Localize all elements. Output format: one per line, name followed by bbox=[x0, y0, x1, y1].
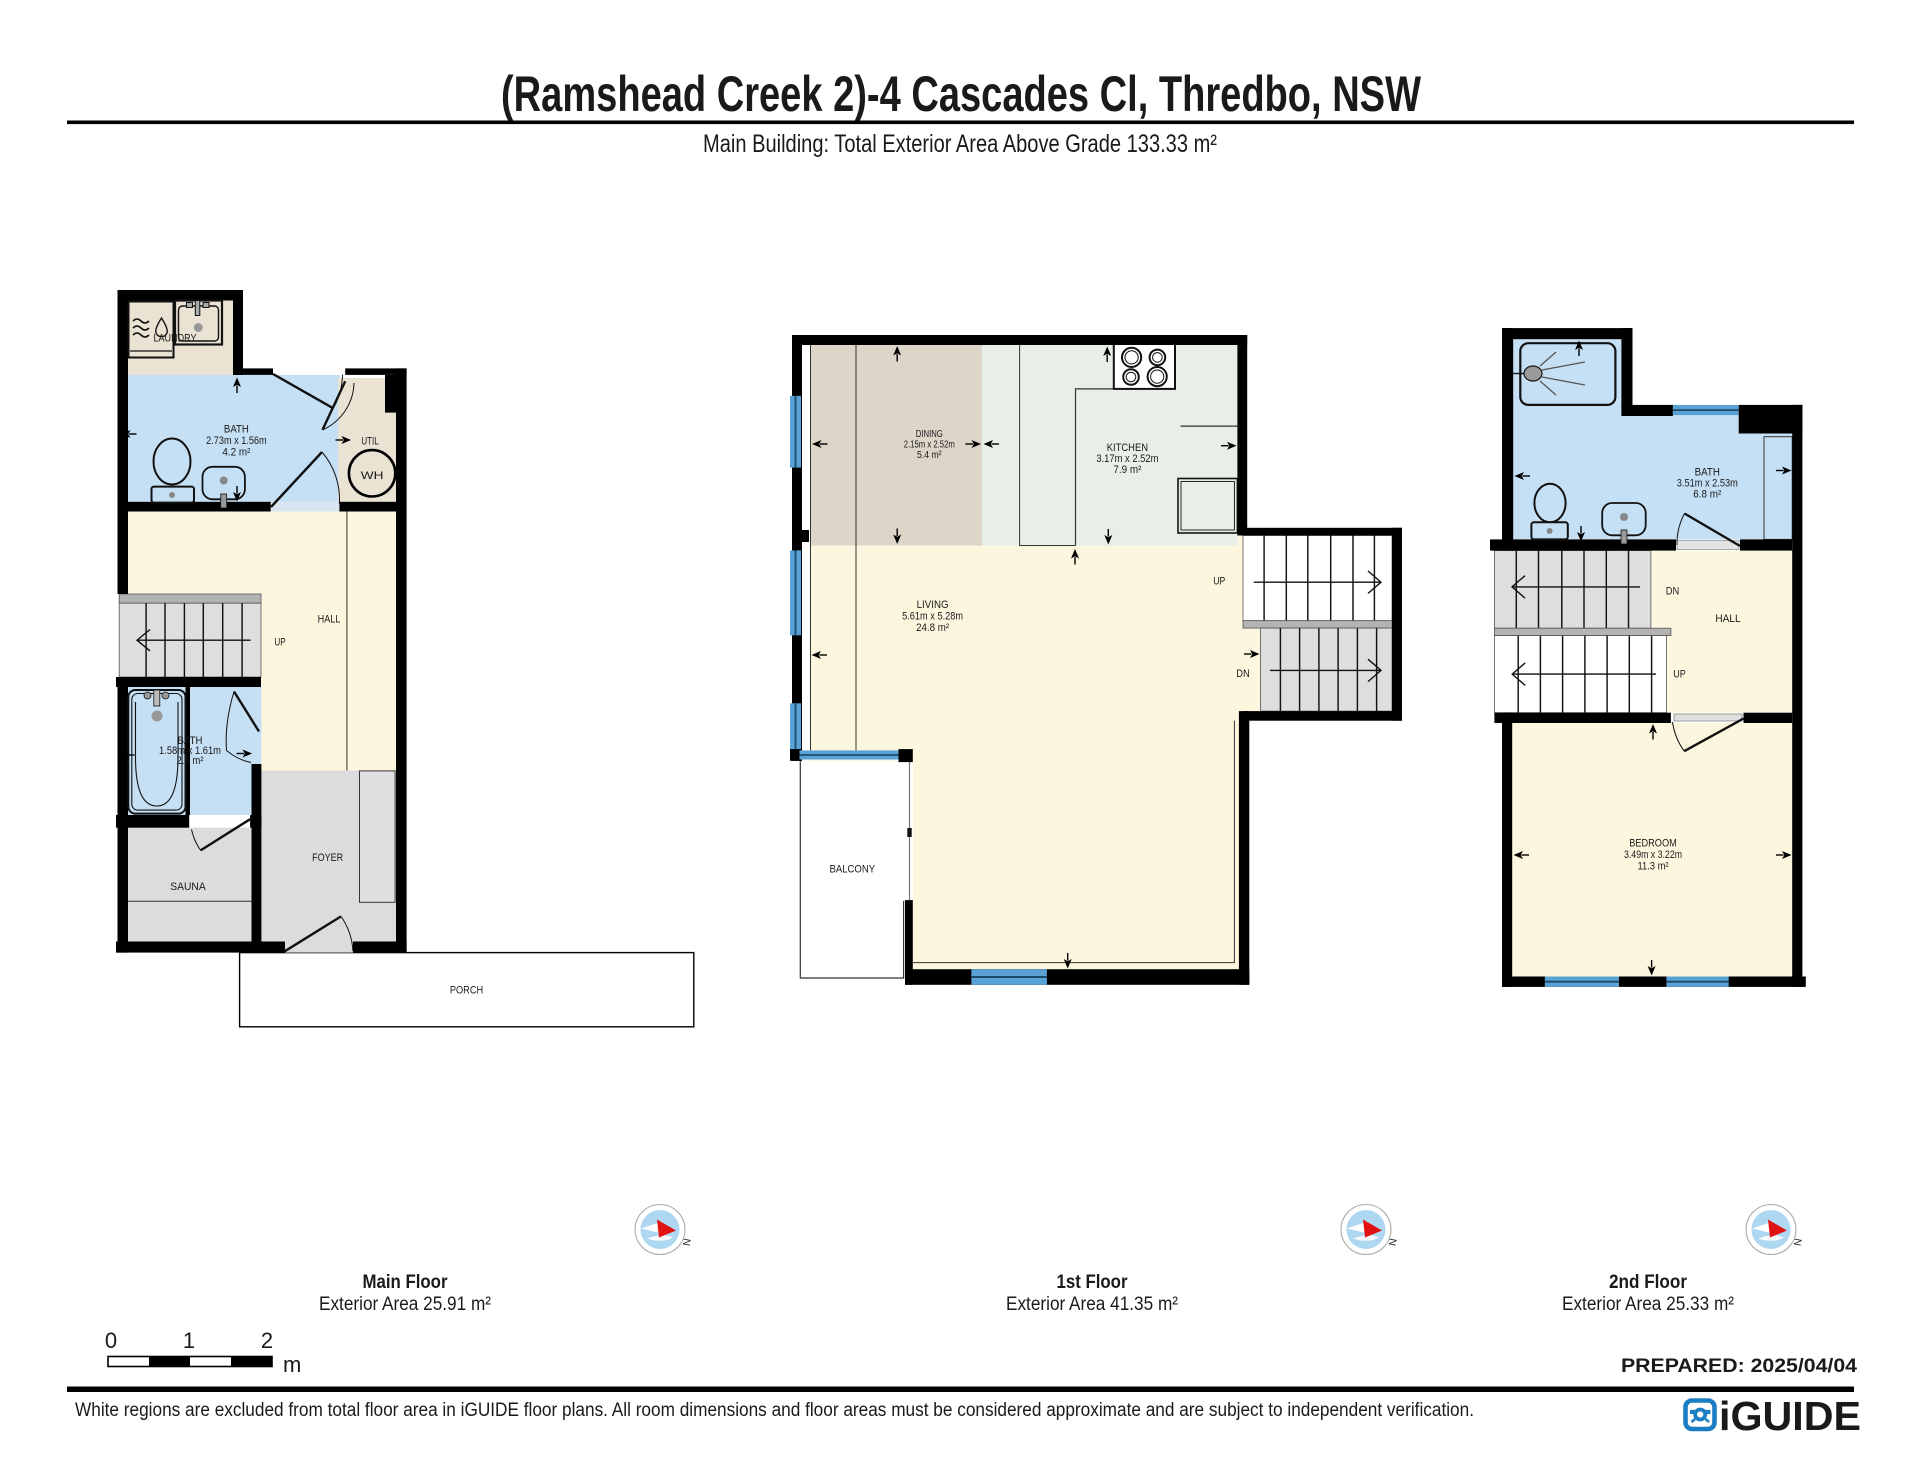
svg-text:DINING: DINING bbox=[916, 429, 943, 440]
svg-text:0: 0 bbox=[105, 1328, 117, 1353]
svg-text:KITCHEN: KITCHEN bbox=[1107, 442, 1148, 454]
svg-text:2nd Floor: 2nd Floor bbox=[1609, 1272, 1688, 1293]
svg-text:1: 1 bbox=[183, 1328, 195, 1353]
svg-text:HALL: HALL bbox=[318, 613, 341, 625]
svg-text:PREPARED: 2025/04/04: PREPARED: 2025/04/04 bbox=[1621, 1356, 1857, 1377]
svg-text:UTIL: UTIL bbox=[361, 435, 378, 447]
svg-text:6.8 m²: 6.8 m² bbox=[1693, 489, 1721, 501]
svg-text:DN: DN bbox=[1666, 586, 1680, 598]
svg-text:UP: UP bbox=[1213, 576, 1225, 588]
svg-text:(Ramshead Creek 2)-4 Cascades: (Ramshead Creek 2)-4 Cascades Cl, Thredb… bbox=[501, 66, 1422, 122]
svg-text:11.3 m²: 11.3 m² bbox=[1638, 861, 1669, 873]
svg-text:2: 2 bbox=[261, 1328, 273, 1353]
svg-text:Exterior Area 25.33 m²: Exterior Area 25.33 m² bbox=[1562, 1294, 1734, 1315]
svg-text:5.4 m²: 5.4 m² bbox=[917, 450, 942, 461]
svg-text:Exterior Area 41.35 m²: Exterior Area 41.35 m² bbox=[1006, 1294, 1178, 1315]
svg-text:BEDROOM: BEDROOM bbox=[1629, 838, 1677, 850]
svg-text:7.9 m²: 7.9 m² bbox=[1113, 464, 1141, 476]
svg-text:1st Floor: 1st Floor bbox=[1057, 1272, 1129, 1293]
svg-text:BALCONY: BALCONY bbox=[830, 864, 876, 876]
svg-text:24.8 m²: 24.8 m² bbox=[916, 622, 949, 634]
svg-text:2.73m x 1.56m: 2.73m x 1.56m bbox=[206, 435, 267, 447]
svg-text:UP: UP bbox=[274, 637, 285, 649]
svg-text:HALL: HALL bbox=[1715, 613, 1740, 625]
svg-text:4.2 m²: 4.2 m² bbox=[222, 447, 250, 459]
svg-text:White regions are excluded fro: White regions are excluded from total fl… bbox=[75, 1400, 1474, 1421]
svg-text:Main Floor: Main Floor bbox=[363, 1272, 449, 1293]
svg-text:Exterior Area 25.91 m²: Exterior Area 25.91 m² bbox=[319, 1294, 491, 1315]
svg-text:DN: DN bbox=[1236, 668, 1250, 680]
svg-text:m: m bbox=[283, 1352, 301, 1377]
svg-text:5.61m x 5.28m: 5.61m x 5.28m bbox=[902, 611, 963, 623]
svg-text:iGUIDE: iGUIDE bbox=[1719, 1393, 1861, 1439]
svg-text:2.15m x 2.52m: 2.15m x 2.52m bbox=[904, 439, 955, 450]
svg-text:WH: WH bbox=[361, 470, 384, 482]
svg-text:LAUNDRY: LAUNDRY bbox=[154, 333, 198, 345]
svg-text:Main Building: Total Exterior: Main Building: Total Exterior Area Above… bbox=[703, 130, 1217, 158]
svg-text:2.5 m²: 2.5 m² bbox=[177, 755, 204, 767]
svg-text:FOYER: FOYER bbox=[312, 852, 343, 864]
svg-text:3.49m x 3.22m: 3.49m x 3.22m bbox=[1624, 849, 1682, 861]
svg-text:UP: UP bbox=[1673, 669, 1686, 681]
svg-text:BATH: BATH bbox=[224, 424, 249, 436]
svg-text:PORCH: PORCH bbox=[450, 985, 483, 997]
svg-text:SAUNA: SAUNA bbox=[170, 881, 206, 893]
svg-text:LIVING: LIVING bbox=[917, 599, 949, 611]
